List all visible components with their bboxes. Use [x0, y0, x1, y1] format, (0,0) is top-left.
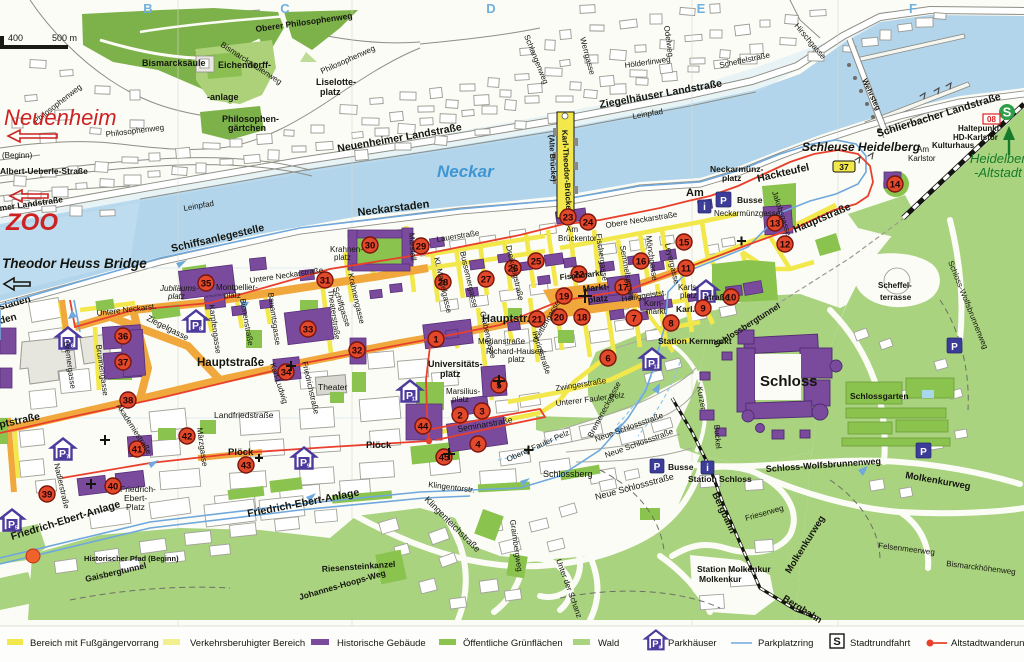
svg-text:platz: platz — [224, 291, 241, 300]
svg-text:Altstadtwanderung: Altstadtwanderung — [951, 638, 1024, 649]
svg-text:Parkplatzring: Parkplatzring — [758, 638, 813, 649]
svg-text:P: P — [192, 320, 199, 332]
svg-text:11: 11 — [681, 263, 692, 274]
svg-text:08: 08 — [987, 115, 996, 124]
svg-text:HD-Karlstor: HD-Karlstor — [953, 133, 998, 142]
svg-text:Brückentor: Brückentor — [558, 234, 597, 243]
svg-text:Neckar: Neckar — [437, 162, 495, 181]
svg-text:platz: platz — [167, 292, 185, 301]
svg-text:terrasse: terrasse — [880, 293, 912, 302]
svg-text:Molkenkur: Molkenkur — [699, 574, 742, 584]
svg-text:8: 8 — [199, 327, 202, 333]
svg-text:6: 6 — [605, 353, 610, 364]
svg-text:Hauptstraße: Hauptstraße — [197, 357, 264, 369]
svg-text:P: P — [59, 448, 66, 460]
svg-text:ZOO: ZOO — [5, 209, 58, 236]
svg-text:Station Molkenkur: Station Molkenkur — [697, 564, 771, 574]
svg-text:Parkhäuser: Parkhäuser — [668, 638, 717, 649]
svg-text:13: 13 — [770, 218, 781, 229]
svg-text:Theodor Heuss Bridge: Theodor Heuss Bridge — [2, 256, 147, 271]
svg-text:30: 30 — [365, 240, 376, 251]
svg-text:7: 7 — [631, 313, 636, 324]
svg-text:Schloss: Schloss — [760, 373, 818, 390]
svg-text:500 m: 500 m — [52, 33, 77, 43]
svg-text:Busse: Busse — [737, 195, 763, 205]
svg-text:36: 36 — [118, 331, 129, 342]
svg-text:straße: straße — [704, 292, 730, 302]
svg-text:Schleuse Heidelberg: Schleuse Heidelberg — [802, 140, 921, 154]
svg-text:platz: platz — [722, 173, 741, 183]
svg-text:Schlossgarten: Schlossgarten — [850, 391, 909, 401]
svg-text:27: 27 — [481, 274, 492, 285]
svg-text:9: 9 — [307, 464, 310, 470]
svg-text:14: 14 — [890, 179, 901, 190]
svg-text:P: P — [652, 639, 658, 650]
svg-text:40: 40 — [108, 481, 119, 492]
svg-text:platz: platz — [440, 369, 461, 379]
svg-text:Historischer Pfad (Beginn): Historischer Pfad (Beginn) — [84, 554, 179, 563]
svg-text:Platz: Platz — [126, 502, 145, 512]
svg-text:Am: Am — [566, 225, 578, 234]
svg-text:F: F — [909, 1, 917, 16]
svg-text:platz: platz — [452, 395, 469, 404]
svg-text:Plöck: Plöck — [228, 447, 254, 458]
svg-text:Neckarmünzgasse: Neckarmünzgasse — [714, 209, 781, 218]
svg-text:Scheffel-: Scheffel- — [878, 281, 912, 290]
svg-text:(Beginn): (Beginn) — [2, 151, 33, 160]
svg-text:16: 16 — [636, 256, 647, 267]
svg-text:-anlage: -anlage — [207, 92, 239, 102]
svg-text:31: 31 — [320, 275, 331, 286]
svg-text:D: D — [486, 1, 495, 16]
svg-text:24: 24 — [583, 217, 594, 228]
svg-text:1: 1 — [433, 334, 439, 345]
svg-text:Neuenheim: Neuenheim — [4, 105, 117, 130]
svg-text:23: 23 — [563, 212, 574, 223]
svg-text:25: 25 — [531, 256, 542, 267]
svg-text:Liselotte-: Liselotte- — [316, 77, 356, 87]
svg-text:Landfriedstraße: Landfriedstraße — [214, 410, 274, 420]
svg-text:12: 12 — [780, 239, 791, 250]
svg-text:400: 400 — [8, 33, 23, 43]
svg-text:Kulturhaus: Kulturhaus — [932, 141, 975, 150]
svg-text:platz: platz — [320, 87, 341, 97]
svg-text:Bereich mit Fußgängervorrang: Bereich mit Fußgängervorrang — [30, 638, 159, 649]
svg-text:Heidelberg: Heidelberg — [970, 151, 1024, 166]
svg-text:4: 4 — [475, 439, 481, 450]
svg-text:i: i — [706, 463, 709, 474]
svg-text:19: 19 — [559, 291, 570, 302]
svg-text:platz: platz — [680, 291, 697, 300]
svg-text:Bismarcksäule: Bismarcksäule — [142, 58, 206, 68]
svg-text:Schlossberg: Schlossberg — [543, 469, 593, 479]
svg-text:Universitäts-: Universitäts- — [428, 359, 483, 369]
svg-text:Albert-Ueberle-Straße: Albert-Ueberle-Straße — [0, 166, 88, 176]
svg-text:39: 39 — [42, 489, 53, 500]
svg-text:Stadtrundfahrt: Stadtrundfahrt — [850, 638, 911, 649]
svg-text:Karl.: Karl. — [676, 304, 695, 314]
svg-text:Haltepunkt: Haltepunkt — [958, 124, 1000, 133]
svg-text:P: P — [654, 462, 661, 473]
svg-text:platz: platz — [334, 253, 351, 262]
svg-text:P: P — [951, 342, 958, 353]
svg-text:11: 11 — [412, 397, 418, 403]
svg-text:P: P — [300, 457, 307, 469]
svg-text:Station Schloss: Station Schloss — [688, 474, 752, 484]
svg-text:markt: markt — [646, 307, 667, 316]
svg-text:35: 35 — [201, 278, 212, 289]
svg-text:2: 2 — [457, 410, 462, 421]
svg-text:44: 44 — [418, 421, 429, 432]
svg-text:S: S — [833, 636, 840, 648]
svg-text:18: 18 — [577, 312, 588, 323]
svg-text:P: P — [920, 447, 927, 458]
svg-text:12: 12 — [653, 365, 659, 371]
svg-text:Plöck: Plöck — [366, 440, 392, 451]
svg-text:8: 8 — [668, 318, 673, 329]
svg-text:7: 7 — [66, 455, 69, 461]
svg-text:37: 37 — [118, 357, 129, 368]
svg-text:i: i — [703, 202, 706, 213]
svg-text:32: 32 — [352, 345, 363, 356]
svg-text:15: 15 — [679, 237, 690, 248]
svg-text:Wald: Wald — [598, 638, 619, 649]
svg-text:3: 3 — [479, 406, 484, 417]
svg-text:Am: Am — [686, 187, 704, 199]
svg-text:33: 33 — [303, 324, 314, 335]
svg-text:Karlstor: Karlstor — [908, 154, 936, 163]
svg-text:B: B — [143, 1, 152, 16]
svg-text:42: 42 — [182, 431, 193, 442]
svg-text:Öffentliche Grünflächen: Öffentliche Grünflächen — [463, 638, 563, 649]
svg-text:gärtchen: gärtchen — [228, 123, 266, 133]
svg-text:-Altstadt: -Altstadt — [974, 165, 1023, 180]
svg-text:C: C — [280, 1, 290, 16]
svg-text:Verkehrsberuhigter Bereich: Verkehrsberuhigter Bereich — [190, 638, 305, 649]
svg-text:platz: platz — [508, 355, 525, 364]
svg-text:43: 43 — [241, 460, 252, 471]
svg-text:Historische Gebäude: Historische Gebäude — [337, 638, 426, 649]
svg-text:9: 9 — [700, 303, 705, 314]
svg-text:9: 9 — [659, 644, 662, 650]
svg-text:37: 37 — [839, 162, 849, 172]
svg-text:S: S — [1003, 105, 1012, 120]
svg-text:Theater: Theater — [318, 382, 347, 392]
svg-text:P: P — [720, 196, 727, 207]
svg-text:E: E — [697, 1, 706, 16]
